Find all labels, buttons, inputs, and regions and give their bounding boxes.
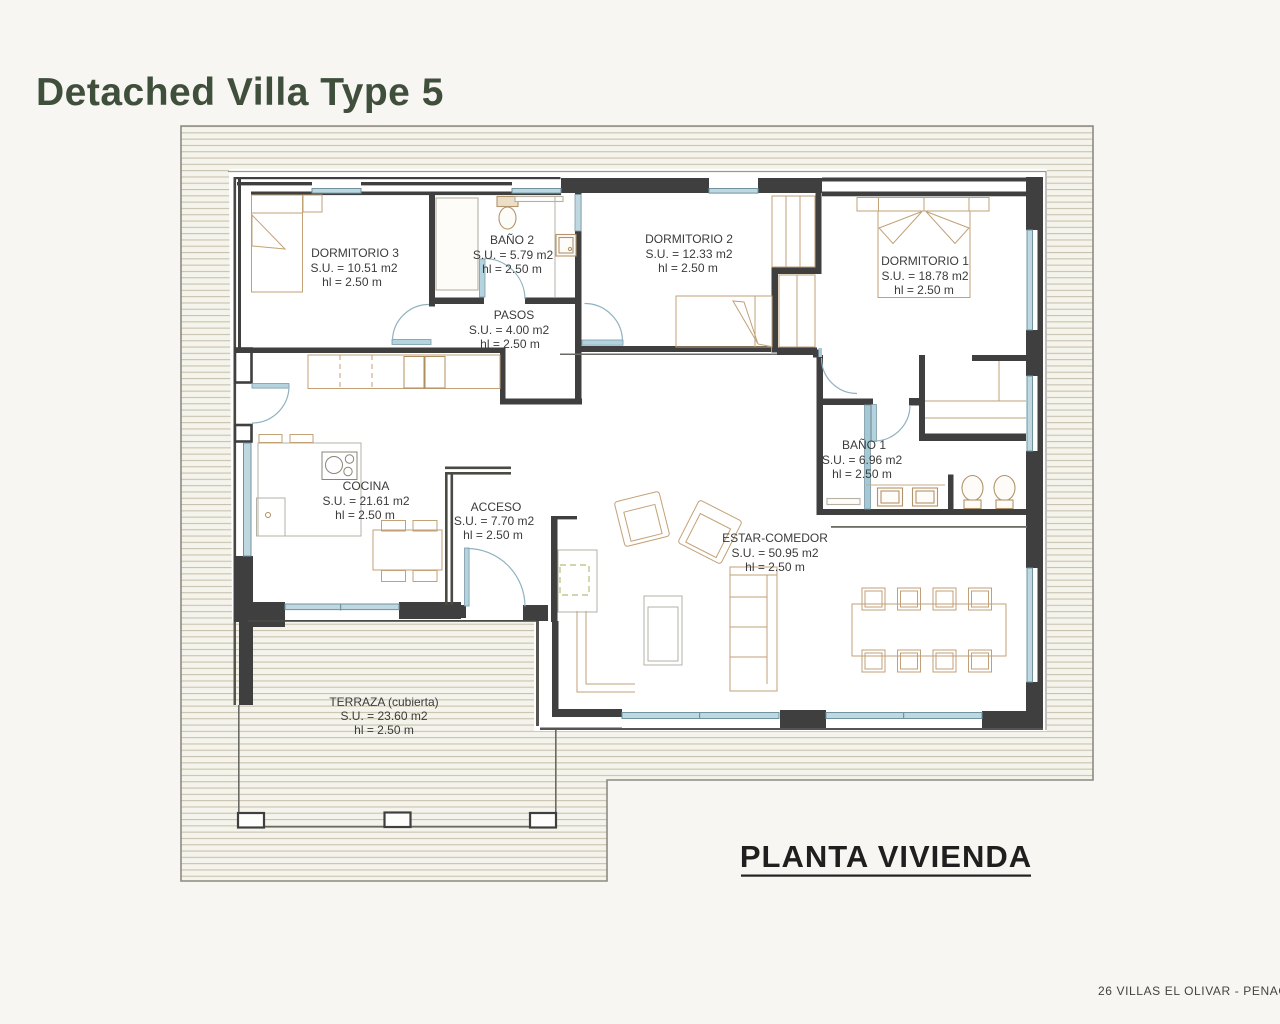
svg-text:PLANTA VIVIENDA: PLANTA VIVIENDA	[740, 839, 1032, 874]
svg-text:BAÑO 2: BAÑO 2	[490, 233, 534, 247]
svg-text:26 VILLAS EL OLIVAR - PENAGUIL: 26 VILLAS EL OLIVAR - PENAGUILA	[1098, 984, 1280, 998]
svg-text:COCINA: COCINA	[343, 479, 390, 493]
svg-text:hl = 2.50 m: hl = 2.50 m	[480, 337, 540, 351]
svg-text:DORMITORIO 1: DORMITORIO 1	[881, 254, 969, 268]
svg-text:S.U. = 5.79 m2: S.U. = 5.79 m2	[473, 248, 554, 262]
svg-text:ACCESO: ACCESO	[471, 500, 522, 514]
svg-text:hl = 2.50 m: hl = 2.50 m	[832, 467, 892, 481]
svg-text:S.U. = 7.70 m2: S.U. = 7.70 m2	[454, 514, 535, 528]
svg-text:S.U. = 50.95 m2: S.U. = 50.95 m2	[731, 546, 818, 560]
svg-text:S.U. = 10.51 m2: S.U. = 10.51 m2	[310, 261, 397, 275]
svg-text:DORMITORIO 3: DORMITORIO 3	[311, 246, 399, 260]
svg-text:TERRAZA (cubierta): TERRAZA (cubierta)	[329, 695, 438, 709]
svg-text:Detached Villa Type 5: Detached Villa Type 5	[36, 71, 444, 114]
svg-text:hl = 2.50 m: hl = 2.50 m	[482, 262, 542, 276]
svg-text:S.U. = 21.61 m2: S.U. = 21.61 m2	[322, 494, 409, 508]
svg-text:hl = 2.50 m: hl = 2.50 m	[322, 275, 382, 289]
svg-text:hl = 2.50 m: hl = 2.50 m	[463, 528, 523, 542]
svg-text:ESTAR-COMEDOR: ESTAR-COMEDOR	[722, 531, 828, 545]
svg-text:S.U. = 6.96 m2: S.U. = 6.96 m2	[822, 453, 903, 467]
svg-text:S.U. = 12.33 m2: S.U. = 12.33 m2	[645, 247, 732, 261]
svg-text:S.U. = 18.78 m2: S.U. = 18.78 m2	[881, 269, 968, 283]
svg-text:PASOS: PASOS	[494, 308, 534, 322]
svg-text:hl = 2.50 m: hl = 2.50 m	[894, 283, 954, 297]
svg-text:DORMITORIO 2: DORMITORIO 2	[645, 232, 733, 246]
svg-text:S.U. = 23.60 m2: S.U. = 23.60 m2	[340, 709, 427, 723]
svg-text:hl = 2.50 m: hl = 2.50 m	[335, 508, 395, 522]
svg-text:hl = 2.50 m: hl = 2.50 m	[354, 723, 414, 737]
svg-text:S.U. = 4.00 m2: S.U. = 4.00 m2	[469, 323, 550, 337]
svg-text:BAÑO 1: BAÑO 1	[842, 438, 886, 452]
svg-text:hl = 2.50 m: hl = 2.50 m	[658, 261, 718, 275]
svg-text:hl = 2.50 m: hl = 2.50 m	[745, 560, 805, 574]
